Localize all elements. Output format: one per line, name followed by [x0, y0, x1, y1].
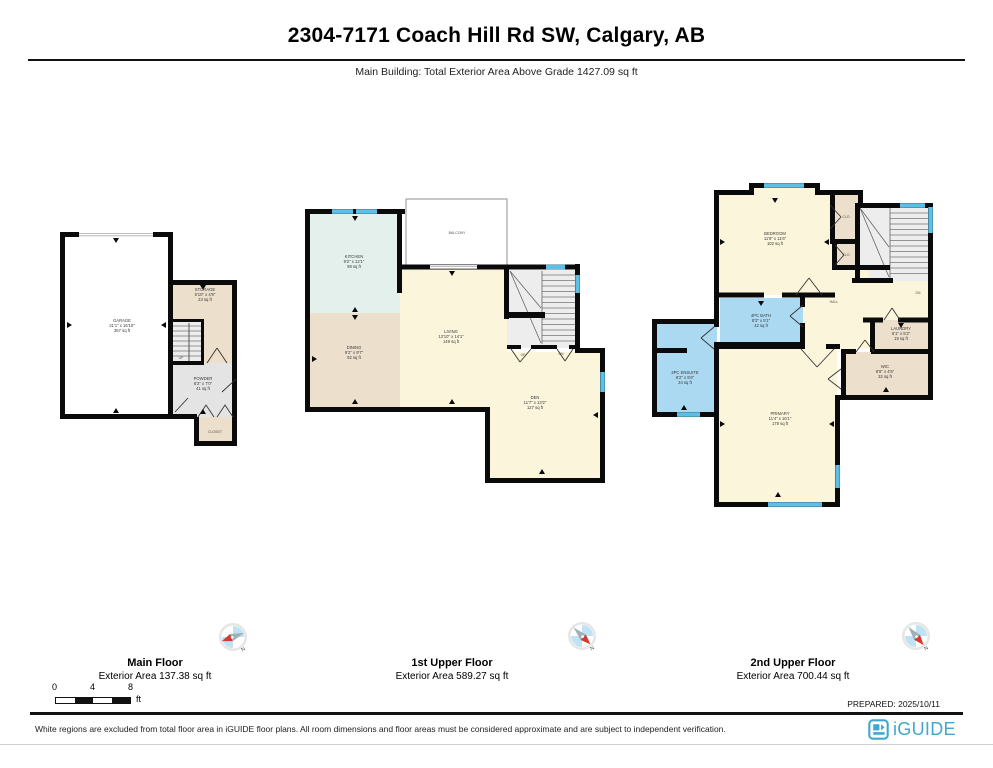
footer-disclaimer: White regions are excluded from total fl… — [35, 724, 815, 734]
wic-area: 32 sq ft — [878, 374, 893, 379]
stairs-up-label: UP — [521, 353, 526, 357]
second-upper-floor-plan: BEDROOM 11'8" x 11'6" 102 sq ft CLO CLO … — [644, 177, 939, 517]
iguide-logo-text: iGUIDE — [893, 719, 956, 740]
prepared-date: PREPARED: 2025/10/11 — [640, 699, 940, 709]
first-upper-floor-plan: BALCONY KITCHEN 9'2" x 12'1" 98 sq ft DI… — [299, 196, 614, 491]
floor-area: Exterior Area 589.27 sq ft — [352, 670, 552, 683]
floor-name: 1st Upper Floor — [352, 656, 552, 670]
stairs-dn-label: DN — [559, 352, 564, 356]
header-divider — [28, 59, 965, 61]
scale-tick-8: 8 — [128, 682, 133, 692]
hall-corridor — [858, 281, 928, 320]
scale-tick-4: 4 — [90, 682, 95, 692]
storage-area: 23 sq ft — [198, 297, 213, 302]
compass-rose-icon: N — [565, 619, 599, 653]
main-floor-plan: GARAGE 21'1" x 16'10" 357 sq ft STORAGE … — [57, 225, 247, 455]
stairs-dn-label: DN — [916, 291, 921, 295]
iguide-logo-icon — [868, 719, 889, 740]
room-dining — [308, 313, 400, 407]
room-ensuite — [655, 322, 717, 415]
stairwell — [171, 321, 202, 363]
main-floor-caption: Main Floor Exterior Area 137.38 sq ft — [55, 656, 255, 683]
building-area-subtitle: Main Building: Total Exterior Area Above… — [0, 66, 993, 78]
iguide-logo: iGUIDE — [868, 719, 956, 740]
compass-rose-icon: N — [899, 619, 933, 653]
compass-rose-icon: N — [216, 620, 250, 654]
compass-north-label: N — [923, 645, 929, 652]
balcony-label: BALCONY — [449, 231, 466, 235]
compass-north-label: N — [589, 645, 595, 652]
stairs-up-label: UP — [179, 356, 184, 360]
footer-divider — [30, 712, 963, 715]
den-area: 127 sq ft — [527, 405, 544, 410]
laundry-area: 19 sq ft — [894, 336, 909, 341]
scale-ticks: 0 4 8 — [50, 682, 150, 694]
bedroom-area: 102 sq ft — [767, 241, 784, 246]
living-area: 149 sq ft — [443, 339, 460, 344]
first-upper-floor-caption: 1st Upper Floor Exterior Area 589.27 sq … — [352, 656, 552, 683]
floorplan-page: 2304-7171 Coach Hill Rd SW, Calgary, AB … — [0, 0, 993, 768]
hall-label: HALL — [830, 300, 839, 304]
scale-bar — [55, 697, 131, 704]
floor-name: Main Floor — [55, 656, 255, 670]
dining-area: 92 sq ft — [347, 355, 362, 360]
bath-area: 42 sq ft — [754, 323, 769, 328]
kitchen-area: 98 sq ft — [347, 264, 362, 269]
second-upper-floor-caption: 2nd Upper Floor Exterior Area 700.44 sq … — [693, 656, 893, 683]
primary-area: 178 sq ft — [772, 421, 789, 426]
floor-area: Exterior Area 700.44 sq ft — [693, 670, 893, 683]
scale-unit: ft — [136, 694, 141, 704]
closet1-label: CLO — [842, 215, 849, 219]
garage-area: 357 sq ft — [114, 328, 131, 333]
ensuite-area: 34 sq ft — [678, 380, 693, 385]
closet2-label: CLO — [842, 253, 849, 257]
closet-label: CLOSET — [208, 430, 223, 434]
powder-area: 41 sq ft — [196, 386, 211, 391]
compass-north-label: N — [240, 646, 246, 653]
page-title: 2304-7171 Coach Hill Rd SW, Calgary, AB — [0, 24, 993, 48]
scale-tick-0: 0 — [52, 682, 57, 692]
bottom-border — [0, 744, 993, 745]
floor-name: 2nd Upper Floor — [693, 656, 893, 670]
